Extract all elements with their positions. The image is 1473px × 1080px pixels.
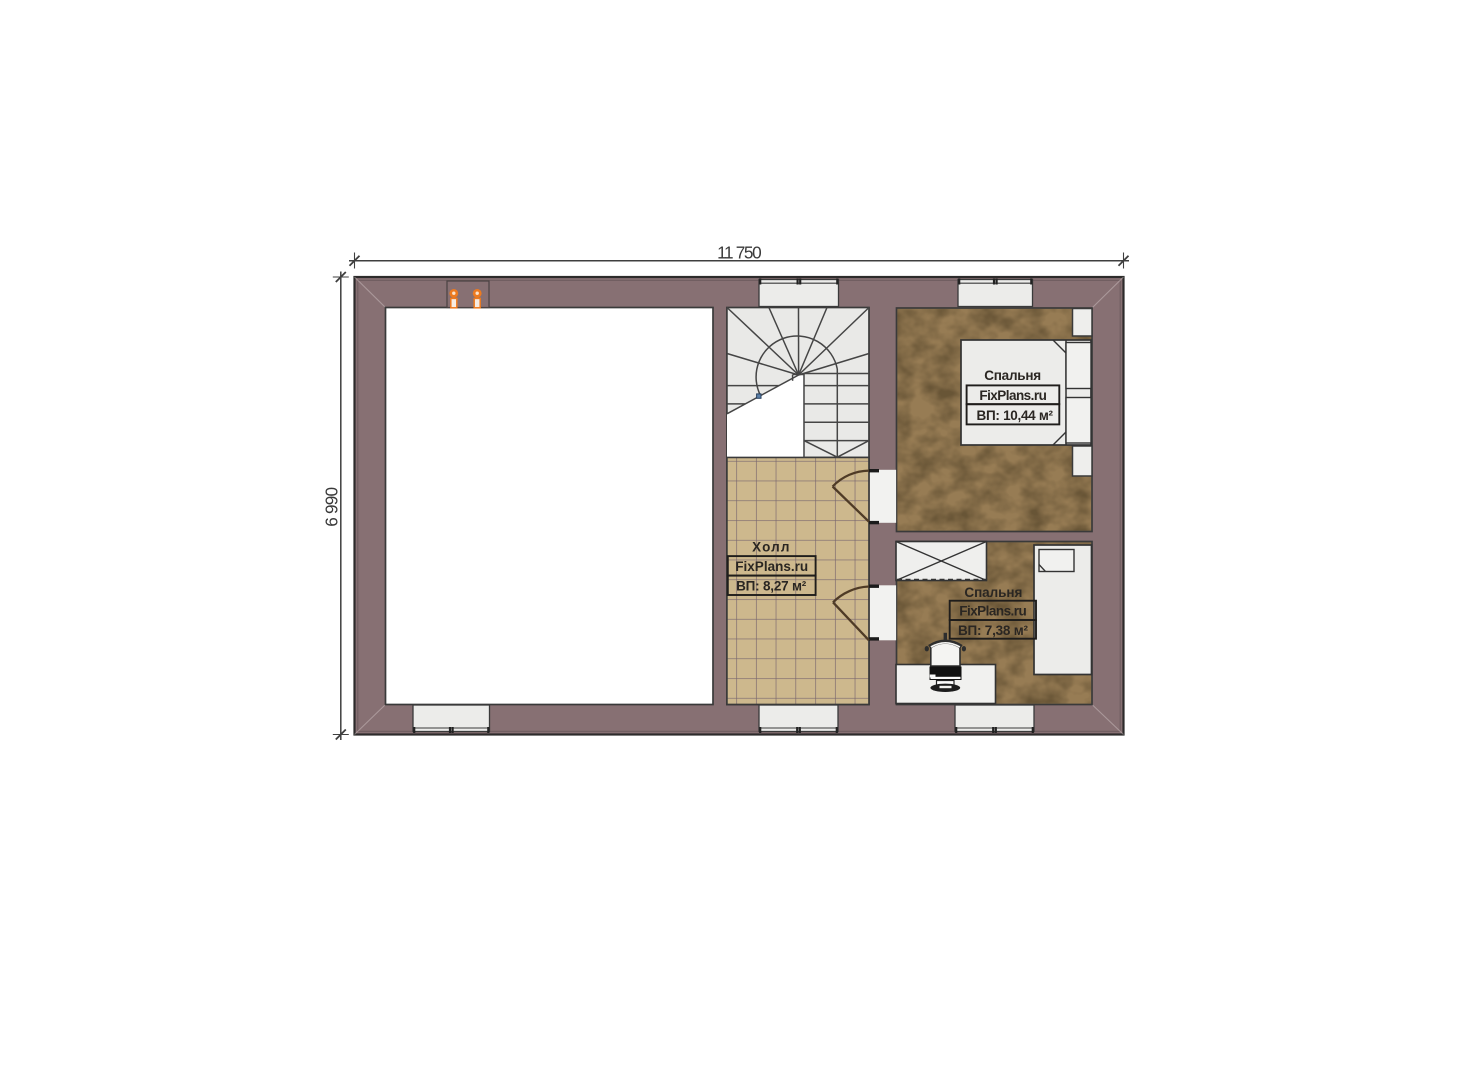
svg-text:ВП: 8,27 м²: ВП: 8,27 м² bbox=[736, 579, 807, 594]
svg-text:FixPlans.ru: FixPlans.ru bbox=[959, 604, 1027, 619]
svg-text:Холл: Холл bbox=[752, 539, 789, 554]
svg-text:6 990: 6 990 bbox=[321, 487, 341, 527]
svg-text:Спальня: Спальня bbox=[984, 368, 1041, 383]
svg-text:ВП: 10,44 м²: ВП: 10,44 м² bbox=[977, 408, 1054, 423]
svg-text:Спальня: Спальня bbox=[964, 585, 1022, 600]
svg-text:ВП: 7,38 м²: ВП: 7,38 м² bbox=[958, 623, 1029, 638]
svg-text:11 750: 11 750 bbox=[717, 242, 762, 262]
svg-text:FixPlans.ru: FixPlans.ru bbox=[979, 388, 1047, 403]
svg-text:FixPlans.ru: FixPlans.ru bbox=[735, 559, 808, 574]
